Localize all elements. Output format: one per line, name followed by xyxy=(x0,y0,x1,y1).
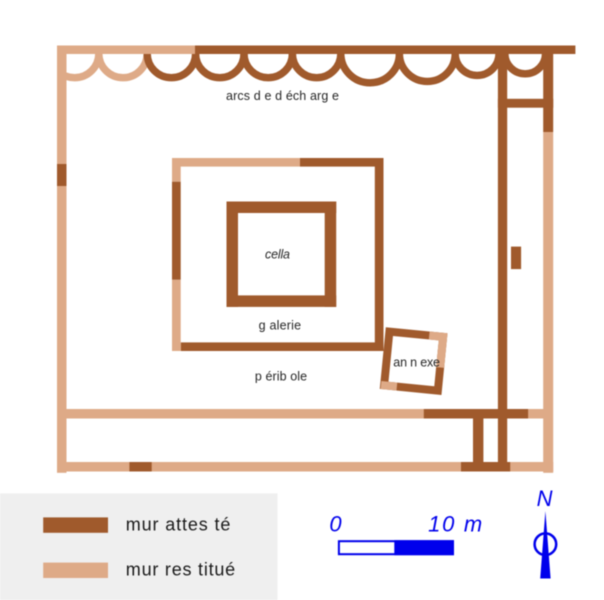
svg-text:g alerie: g alerie xyxy=(259,318,302,332)
svg-text:mur attes té: mur attes té xyxy=(126,514,231,534)
svg-text:mur res titué: mur res titué xyxy=(126,560,235,580)
svg-text:an n exe: an n exe xyxy=(393,356,440,370)
svg-text:N: N xyxy=(537,486,553,511)
svg-text:cella: cella xyxy=(265,248,290,262)
svg-text:10 m: 10 m xyxy=(428,512,482,537)
svg-text:0: 0 xyxy=(329,512,342,537)
svg-text:p érib ole: p érib ole xyxy=(255,370,307,384)
svg-text:arcs d e d éch arg e: arcs d e d éch arg e xyxy=(226,89,339,103)
